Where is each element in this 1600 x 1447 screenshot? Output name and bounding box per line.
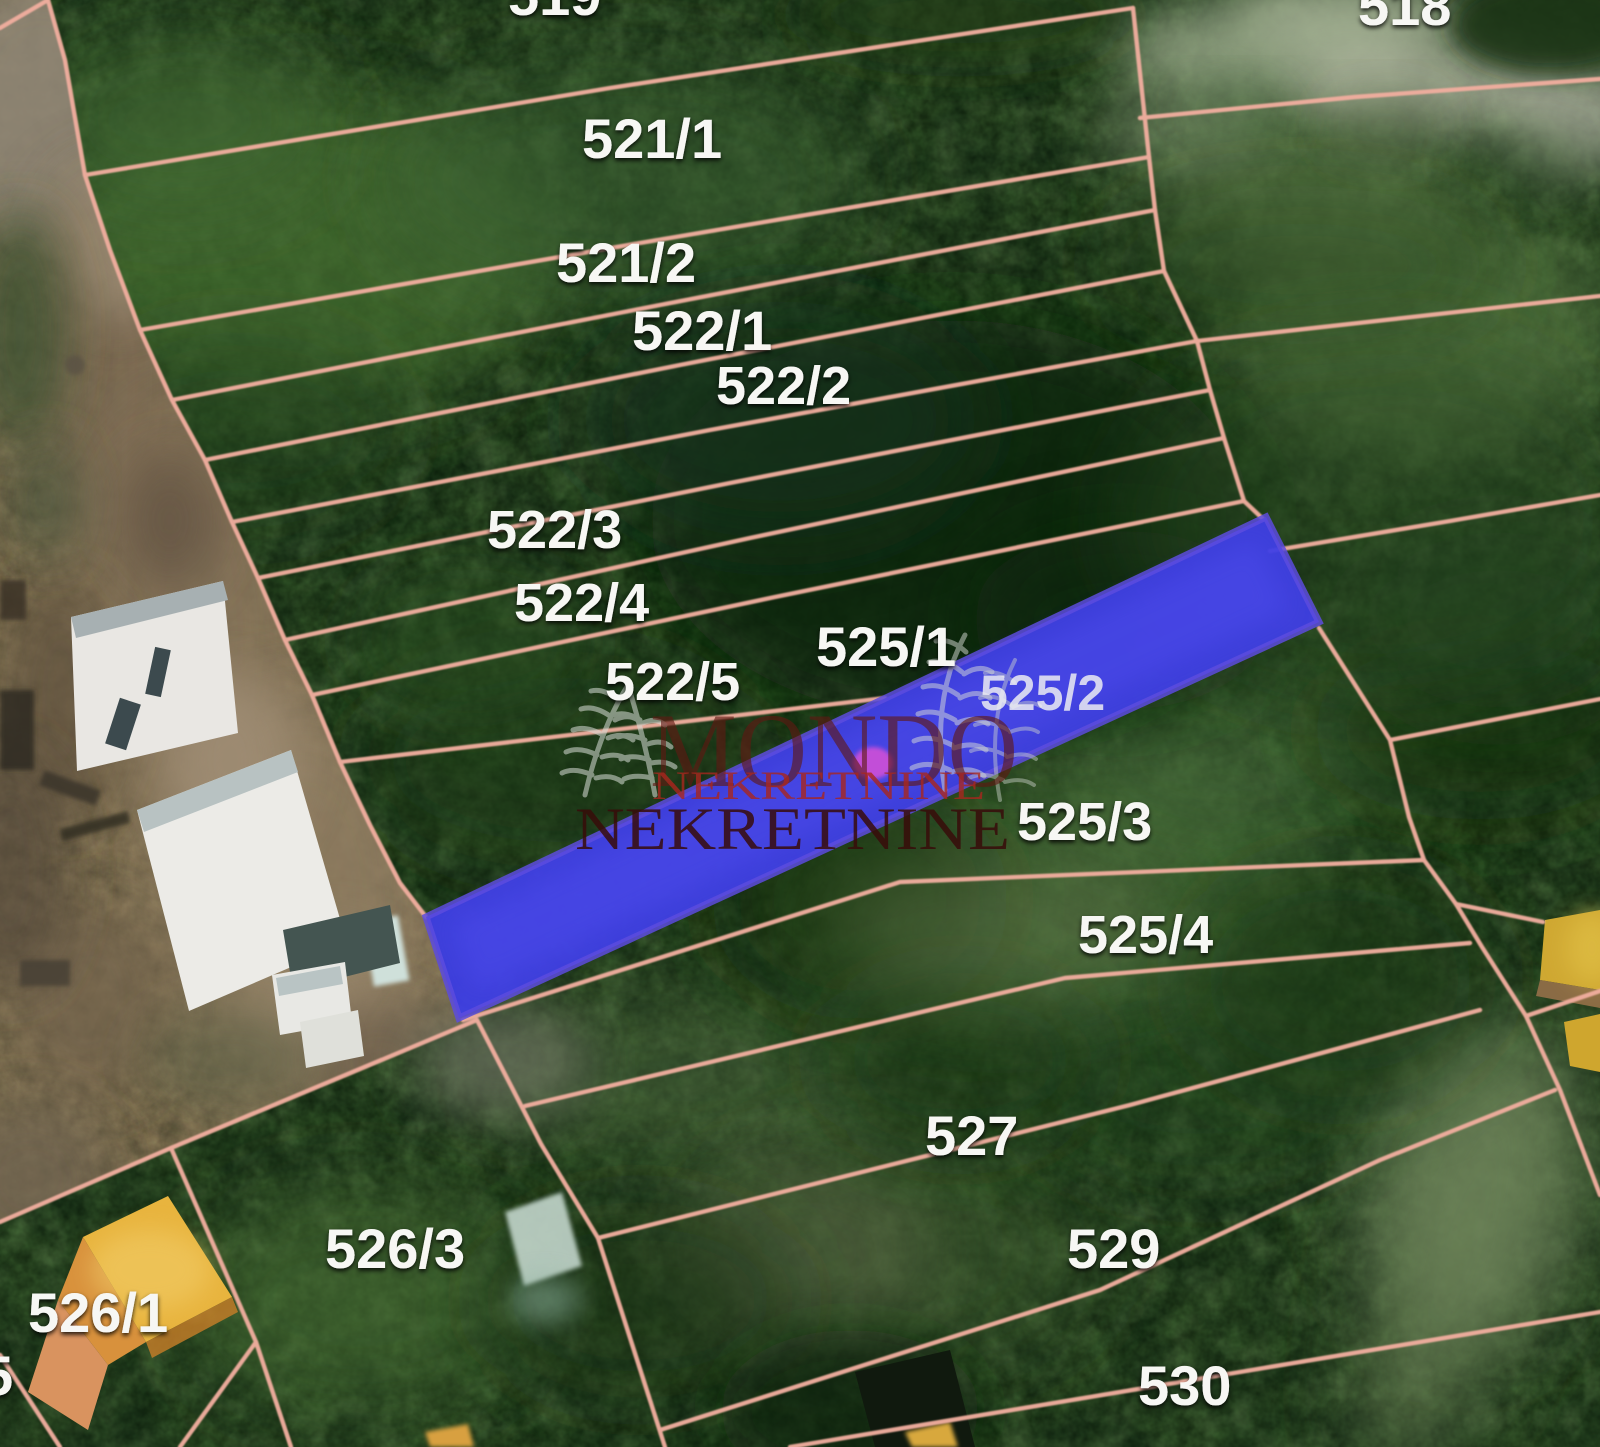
svg-text:525/4: 525/4 (1078, 905, 1213, 965)
svg-text:519: 519 (508, 0, 601, 27)
svg-text:522/5: 522/5 (605, 652, 740, 712)
svg-text:526/1: 526/1 (28, 1281, 168, 1344)
svg-text:525/2: 525/2 (980, 665, 1105, 721)
svg-text:518: 518 (1358, 0, 1451, 37)
svg-text:5: 5 (0, 1344, 13, 1407)
svg-text:525/3: 525/3 (1017, 792, 1152, 852)
svg-text:521/2: 521/2 (556, 231, 696, 294)
svg-text:NEKRETNINE: NEKRETNINE (575, 796, 1010, 862)
svg-text:529: 529 (1067, 1217, 1160, 1280)
svg-text:522/1: 522/1 (632, 299, 772, 362)
svg-text:525/1: 525/1 (816, 615, 956, 678)
svg-text:521/1: 521/1 (582, 107, 722, 170)
svg-text:522/3: 522/3 (487, 500, 622, 560)
svg-text:522/2: 522/2 (716, 356, 851, 416)
svg-text:526/3: 526/3 (325, 1217, 465, 1280)
svg-text:527: 527 (925, 1104, 1018, 1167)
svg-text:530: 530 (1138, 1354, 1231, 1417)
svg-text:522/4: 522/4 (514, 573, 649, 633)
